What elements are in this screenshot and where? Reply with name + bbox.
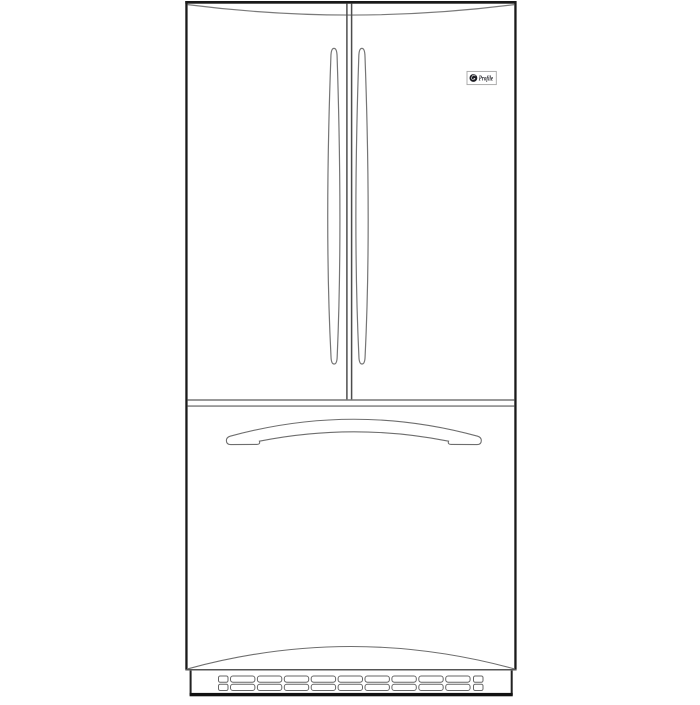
svg-text:Profile: Profile [479, 75, 493, 82]
